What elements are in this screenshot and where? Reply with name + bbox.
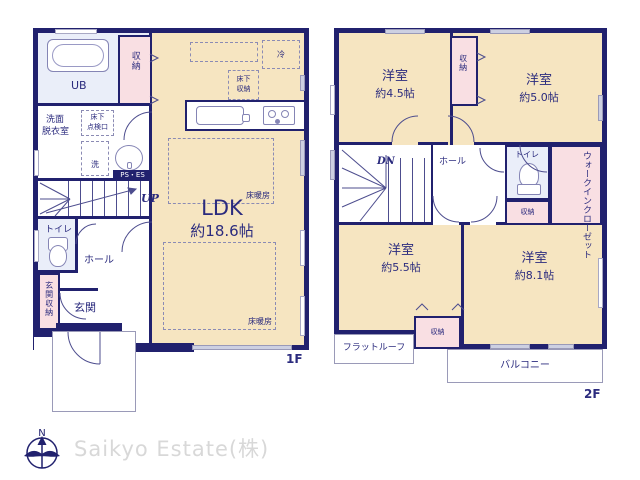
ldk-name: LDK bbox=[162, 196, 282, 221]
cupboard-box bbox=[190, 42, 258, 62]
room-toilet-2f: トイレ bbox=[505, 145, 550, 200]
underfloor-storage-label1: 床下 bbox=[229, 75, 258, 83]
toilet-1f-label: トイレ bbox=[45, 225, 72, 236]
ps-es-label: PS・ES bbox=[113, 171, 152, 179]
room81-name: 洋室 bbox=[482, 251, 587, 267]
hall-1f-label: ホール bbox=[84, 255, 114, 267]
kitchen-stove-icon bbox=[263, 106, 295, 125]
compass-icon: N bbox=[16, 424, 68, 476]
ldk-size: 約18.6帖 bbox=[162, 222, 282, 240]
floor1-plan: 収納 玄関収納 UB 洗面 脱衣室 床下 点検口 洗 PS・ES トイレ ホール… bbox=[33, 28, 309, 350]
room-senmen-label1: 洗面 bbox=[46, 115, 64, 126]
floor-plan-page: { "colors":{"wall":"#21216e","room_fill"… bbox=[0, 0, 640, 480]
entrance-porch bbox=[52, 331, 136, 412]
washbasin-icon bbox=[115, 145, 143, 171]
floor1-tag: 1F bbox=[286, 352, 303, 366]
closet-1f-top-label: 収納 bbox=[129, 51, 140, 71]
floor2-tag: 2F bbox=[584, 387, 601, 401]
room81-size: 約8.1帖 bbox=[482, 269, 587, 282]
floor-heating-2: 床暖房 bbox=[163, 242, 276, 330]
underfloor-access-box: 床下 点検口 bbox=[81, 110, 114, 136]
closet-2f-mid: 収納 bbox=[505, 200, 550, 225]
floor-heating-2-label: 床暖房 bbox=[248, 317, 272, 327]
closet-2f-mid-label: 収納 bbox=[507, 208, 548, 216]
toilet-2f-label: トイレ bbox=[515, 150, 539, 160]
toilet-1f-bowl bbox=[49, 245, 67, 267]
underfloor-access-label1: 床下 bbox=[82, 113, 113, 121]
floor2-plan: 収納 DN ホール トイレ 収納 ウォークインクローゼット 収納 洋室 約4.5… bbox=[334, 28, 607, 349]
fridge-box: 冷 bbox=[262, 40, 300, 69]
flat-roof: フラットルーフ bbox=[334, 334, 414, 364]
closet-2f-top: 収納 bbox=[450, 36, 478, 106]
fridge-label: 冷 bbox=[263, 50, 299, 60]
floor-heating-1: 床暖房 bbox=[168, 138, 274, 204]
room55-name: 洋室 bbox=[351, 243, 451, 259]
kitchen-counter bbox=[185, 100, 304, 131]
room45-size: 約4.5帖 bbox=[349, 87, 441, 100]
balcony-label: バルコニー bbox=[448, 360, 602, 372]
room45-name: 洋室 bbox=[349, 69, 441, 85]
up-label: UP bbox=[141, 192, 159, 205]
room50-size: 約5.0帖 bbox=[487, 91, 591, 104]
kitchen-sink-icon bbox=[196, 106, 244, 125]
closet-2f-bottom-label: 収納 bbox=[416, 328, 459, 336]
underfloor-access-label2: 点検口 bbox=[82, 123, 113, 131]
washer-label: 洗 bbox=[82, 160, 108, 170]
closet-2f-bottom: 収納 bbox=[414, 316, 461, 349]
closet-1f-top: 収納 bbox=[118, 35, 152, 105]
underfloor-storage-box: 床下 収納 bbox=[228, 70, 259, 100]
room55-size: 約5.5帖 bbox=[351, 261, 451, 274]
washer-box: 洗 bbox=[81, 141, 109, 176]
ps-es-badge: PS・ES bbox=[113, 170, 152, 181]
walk-in-closet-label: ウォークインクローゼット bbox=[580, 151, 592, 223]
dn-label: DN bbox=[377, 156, 395, 168]
flat-roof-label: フラットルーフ bbox=[335, 343, 413, 354]
closet-genkan-label: 玄関収納 bbox=[44, 281, 54, 317]
company-logo-text: Saikyo Estate(株) bbox=[74, 437, 269, 462]
room50-name: 洋室 bbox=[487, 73, 591, 89]
bathtub-icon bbox=[47, 39, 109, 72]
walk-in-closet: ウォークインクローゼット bbox=[550, 145, 602, 225]
hall-2f-label: ホール bbox=[439, 157, 466, 168]
balcony: バルコニー bbox=[447, 349, 603, 383]
underfloor-storage-label2: 収納 bbox=[229, 85, 258, 93]
closet-2f-top-label: 収納 bbox=[458, 54, 468, 72]
room-senmen-label2: 脱衣室 bbox=[42, 127, 69, 138]
room-ub-label: UB bbox=[71, 79, 87, 92]
stairs-1f bbox=[68, 181, 149, 216]
kitchen-faucet-icon bbox=[242, 114, 250, 122]
toilet-2f-tank bbox=[517, 184, 541, 195]
genkan-label: 玄関 bbox=[74, 301, 96, 314]
